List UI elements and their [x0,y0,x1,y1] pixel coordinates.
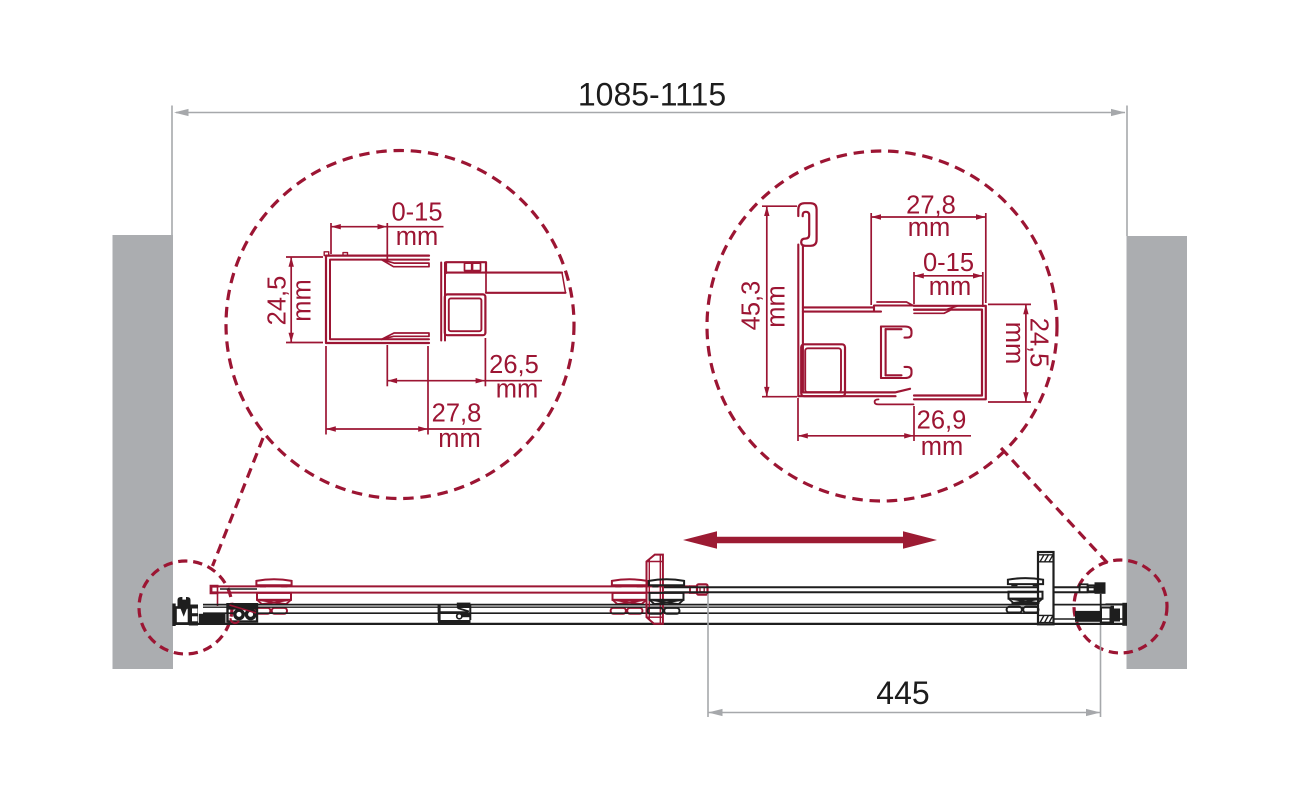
svg-text:mm: mm [908,214,950,242]
svg-text:1085-1115: 1085-1115 [578,77,726,113]
svg-text:45,3: 45,3 [738,281,766,331]
svg-text:mm: mm [438,425,480,453]
svg-text:mm: mm [289,279,317,321]
svg-text:mm: mm [496,376,538,404]
svg-text:mm: mm [396,223,438,251]
svg-text:26,9: 26,9 [917,407,967,435]
svg-text:mm: mm [1000,322,1028,364]
svg-text:mm: mm [921,433,963,461]
svg-text:mm: mm [929,273,971,301]
svg-text:27,8: 27,8 [432,400,482,428]
svg-text:24,5: 24,5 [264,276,292,326]
svg-text:mm: mm [763,285,791,327]
svg-text:445: 445 [876,675,929,711]
